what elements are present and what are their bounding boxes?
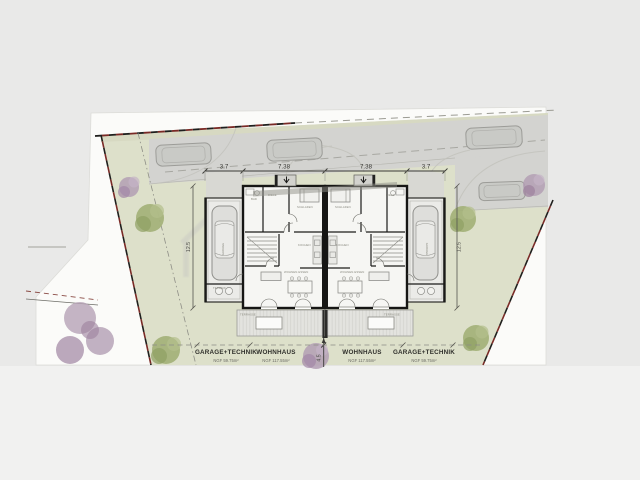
site-plan-image: Immo Group — [0, 0, 640, 480]
label-house-right: WOHNHAUS — [342, 349, 381, 356]
parked-car-icon — [479, 181, 526, 201]
area-house-left: NGF 117.55m² — [262, 358, 290, 363]
background-lower — [0, 366, 640, 480]
label-garage-right: GARAGE+TECHNIK — [393, 349, 455, 356]
parked-car-icon — [267, 138, 323, 162]
dim-depth-left: 12.5 — [186, 242, 192, 252]
room-diele-left: DIELE — [268, 193, 277, 197]
label-house-left: WOHNHAUS — [256, 349, 295, 356]
room-kochen-right: KOCHEN — [336, 243, 349, 247]
room-garage-left: GARAGE — [221, 243, 225, 256]
room-diele-right: DIELE — [386, 193, 395, 197]
dim-terrace-depth: 4.5 — [317, 354, 323, 361]
dim-garage-left: 3.7 — [220, 164, 229, 171]
room-technik-left: TECHNIK — [213, 286, 226, 290]
site-plan-drawing: Immo Group — [0, 0, 640, 480]
tree-green-icon — [450, 206, 476, 232]
room-terrasse-left: TERRASSE — [240, 313, 256, 317]
room-schlafen-right: SCHLAFEN — [335, 205, 351, 209]
room-wohnen-left: WOHNEN·ESSEN — [284, 270, 308, 274]
parked-car-icon — [466, 126, 523, 150]
room-terrasse-right: TERRASSE — [384, 313, 400, 317]
room-garage-right: GARAGE — [425, 243, 429, 256]
room-wohnen-right: WOHNEN·ESSEN — [340, 270, 364, 274]
tree-green-icon — [463, 325, 489, 351]
room-kochen-left: KOCHEN — [298, 243, 311, 247]
area-house-right: NGF 117.55m² — [348, 358, 376, 363]
area-garage-left: NGF 59.75m² — [213, 358, 239, 363]
parked-car-icon — [156, 143, 212, 167]
area-garage-right: NGF 59.75m² — [411, 358, 437, 363]
room-schlafen-left: SCHLAFEN — [297, 205, 313, 209]
dim-depth-right: 12.5 — [457, 242, 463, 252]
dim-garage-right: 3.7 — [422, 164, 431, 171]
dim-house-left: 7.38 — [278, 164, 291, 171]
label-garage-left: GARAGE+TECHNIK — [195, 349, 257, 356]
dim-house-right: 7.38 — [360, 164, 373, 171]
room-bad-left: BAD — [251, 197, 257, 201]
